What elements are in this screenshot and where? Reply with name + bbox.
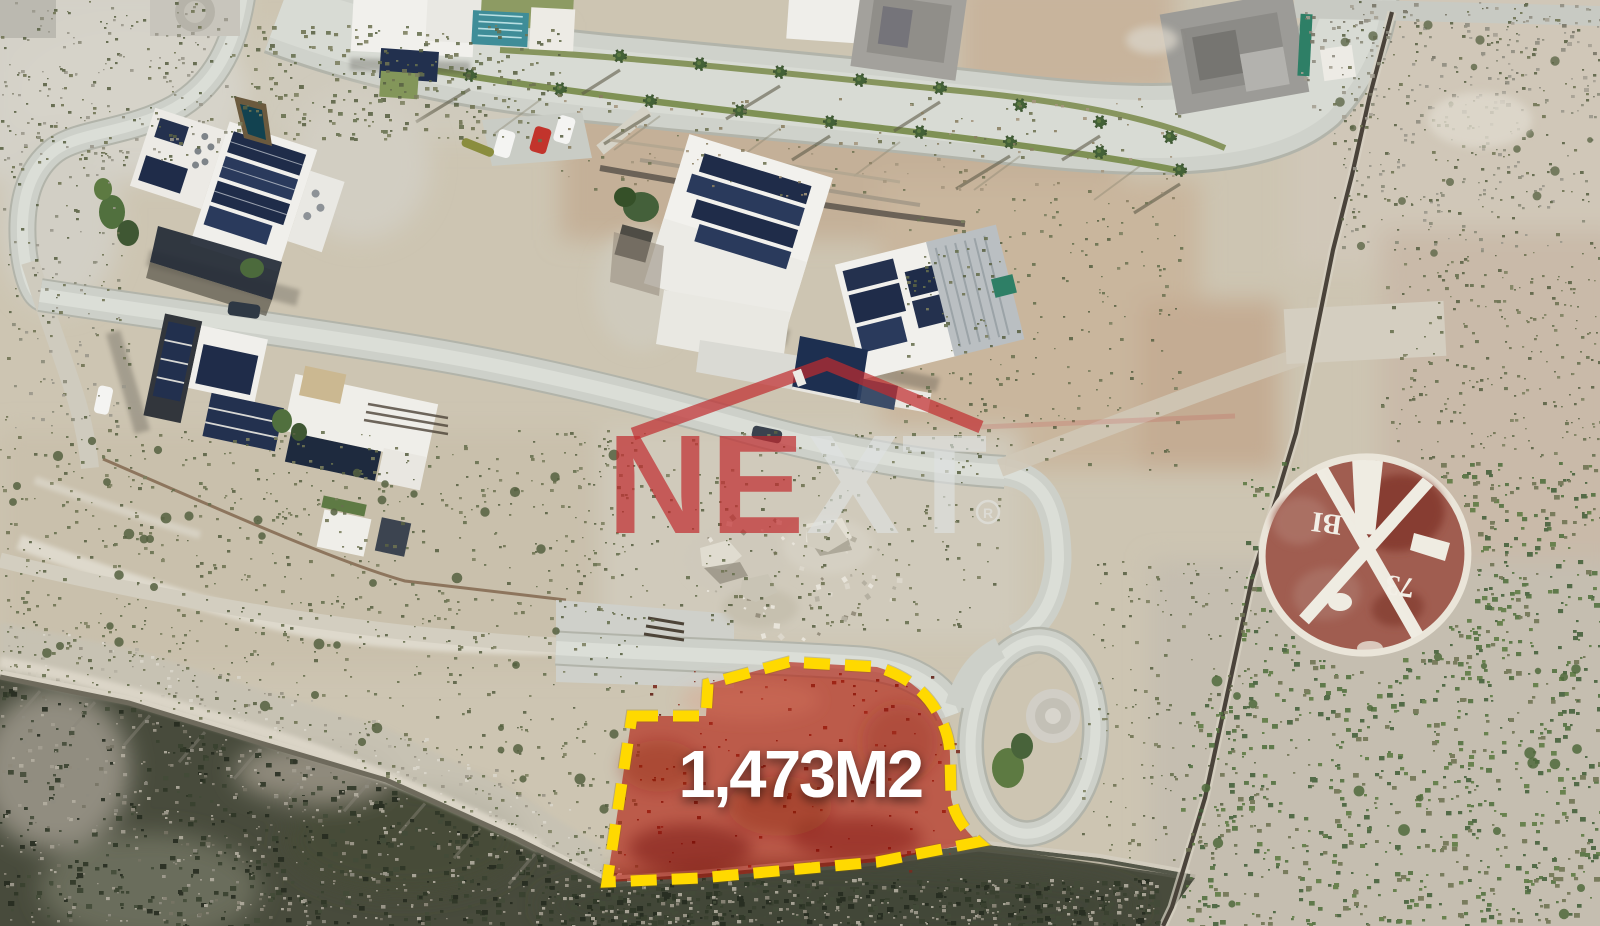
svg-text:BI: BI [1309, 505, 1344, 541]
svg-text:R: R [983, 505, 993, 521]
svg-text:73: 73 [1383, 568, 1416, 604]
svg-text:NEXT: NEXT [607, 405, 989, 563]
svg-text:1,473M2: 1,473M2 [678, 737, 921, 812]
